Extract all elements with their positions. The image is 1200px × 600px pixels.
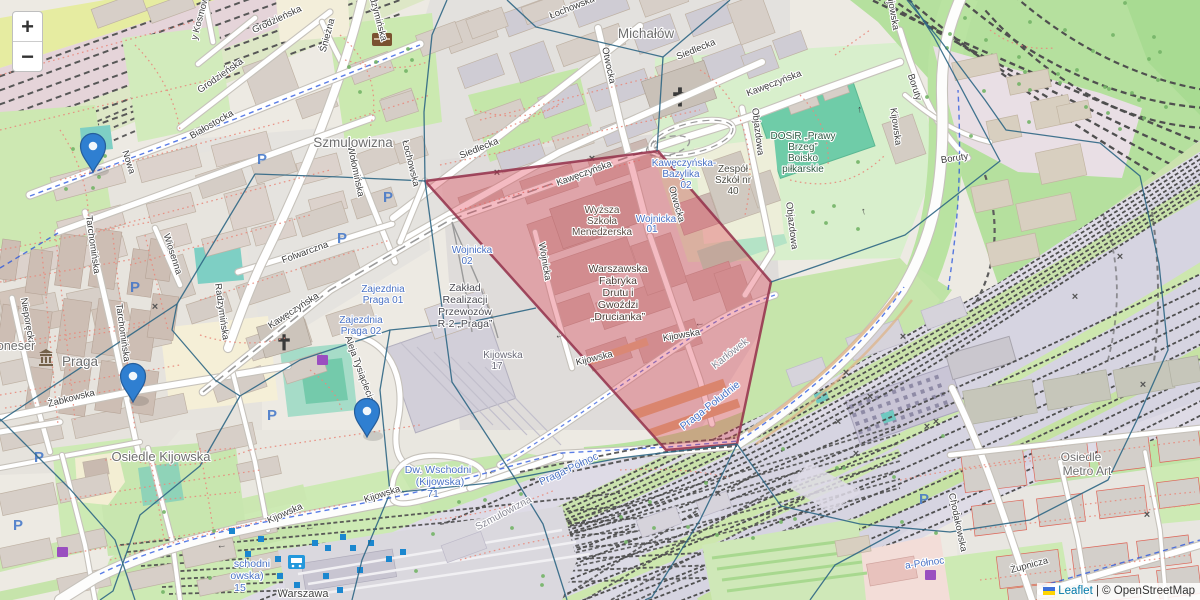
svg-text:P: P (257, 151, 267, 168)
svg-text:Szmulowizna: Szmulowizna (313, 135, 393, 150)
svg-text:(Kijowska): (Kijowska) (416, 476, 464, 488)
svg-text:„Drucianka”: „Drucianka” (591, 311, 646, 323)
svg-text:Zajezdnia: Zajezdnia (361, 284, 405, 295)
svg-text:Bazylika: Bazylika (662, 169, 700, 180)
svg-text:P: P (13, 517, 23, 534)
svg-text:Gwoździ: Gwoździ (598, 299, 638, 311)
svg-text:×: × (1072, 291, 1078, 303)
svg-text:×: × (843, 367, 849, 379)
svg-text:×: × (867, 391, 873, 403)
svg-text:Szkół nr: Szkół nr (715, 175, 752, 186)
svg-text:×: × (1117, 251, 1123, 263)
svg-text:×: × (152, 301, 158, 313)
svg-text:×: × (1144, 509, 1150, 521)
svg-text:×: × (900, 331, 906, 343)
svg-text:×: × (924, 421, 930, 433)
svg-text:Realizacji: Realizacji (443, 294, 488, 306)
svg-text:schodni: schodni (234, 558, 270, 570)
svg-text:Warszawa: Warszawa (278, 588, 330, 600)
svg-text:02: 02 (461, 256, 473, 267)
svg-text:P: P (383, 189, 393, 206)
svg-text:←: ← (216, 539, 227, 551)
svg-text:DOSiR „Prawy: DOSiR „Prawy (770, 131, 835, 142)
svg-text:←: ← (304, 521, 315, 533)
svg-text:Osiedle: Osiedle (1061, 450, 1102, 464)
svg-text:Fabryka: Fabryka (599, 275, 637, 287)
svg-text:←: ← (855, 104, 867, 115)
svg-text:P: P (130, 279, 140, 296)
svg-text:02: 02 (680, 180, 692, 191)
svg-text:Praga: Praga (62, 354, 99, 369)
svg-text:15: 15 (234, 582, 246, 594)
svg-text:01: 01 (646, 224, 658, 235)
svg-text:×: × (835, 416, 841, 428)
svg-text:Michałów: Michałów (618, 26, 675, 41)
svg-text:piłkarskie: piłkarskie (782, 164, 824, 175)
svg-text:R-2 „Praga”: R-2 „Praga” (438, 318, 493, 330)
svg-text:Przewozów: Przewozów (438, 306, 492, 318)
svg-text:P: P (267, 407, 277, 424)
svg-text:Kijowska: Kijowska (483, 350, 523, 361)
svg-text:Osiedle Kijowska: Osiedle Kijowska (112, 449, 212, 464)
svg-text:Wojnicka: Wojnicka (452, 245, 493, 256)
svg-text:Zajezdnia: Zajezdnia (339, 315, 383, 326)
svg-text:×: × (933, 416, 939, 428)
svg-text:Szkoła: Szkoła (587, 216, 617, 227)
svg-text:71: 71 (427, 488, 439, 500)
svg-text:Kawęczyńska-: Kawęczyńska- (652, 158, 716, 169)
svg-text:Metro Art: Metro Art (1063, 464, 1112, 478)
svg-text:P: P (337, 230, 347, 247)
svg-text:Warszawska: Warszawska (588, 263, 647, 275)
svg-text:Wyższa: Wyższa (585, 205, 620, 216)
svg-text:×: × (1140, 379, 1146, 391)
svg-text:Dw. Wschodni: Dw. Wschodni (405, 464, 472, 476)
svg-text:P: P (919, 491, 929, 508)
svg-text:Boisko: Boisko (788, 153, 818, 164)
svg-text:Zakład: Zakład (449, 282, 481, 294)
svg-text:40: 40 (727, 186, 739, 197)
svg-text:Drutu i: Drutu i (603, 287, 634, 299)
svg-text:owska): owska) (230, 570, 263, 582)
svg-text:oneser: oneser (0, 339, 35, 353)
svg-text:×: × (853, 448, 859, 460)
svg-text:Praga 02: Praga 02 (341, 326, 382, 337)
svg-text:Brzeg”: Brzeg” (788, 142, 817, 153)
svg-text:17: 17 (491, 361, 503, 372)
svg-text:Menedżerska: Menedżerska (572, 227, 632, 238)
svg-text:Praga 01: Praga 01 (363, 295, 404, 306)
svg-text:Zespół: Zespół (718, 164, 749, 175)
svg-text:×: × (715, 488, 721, 500)
